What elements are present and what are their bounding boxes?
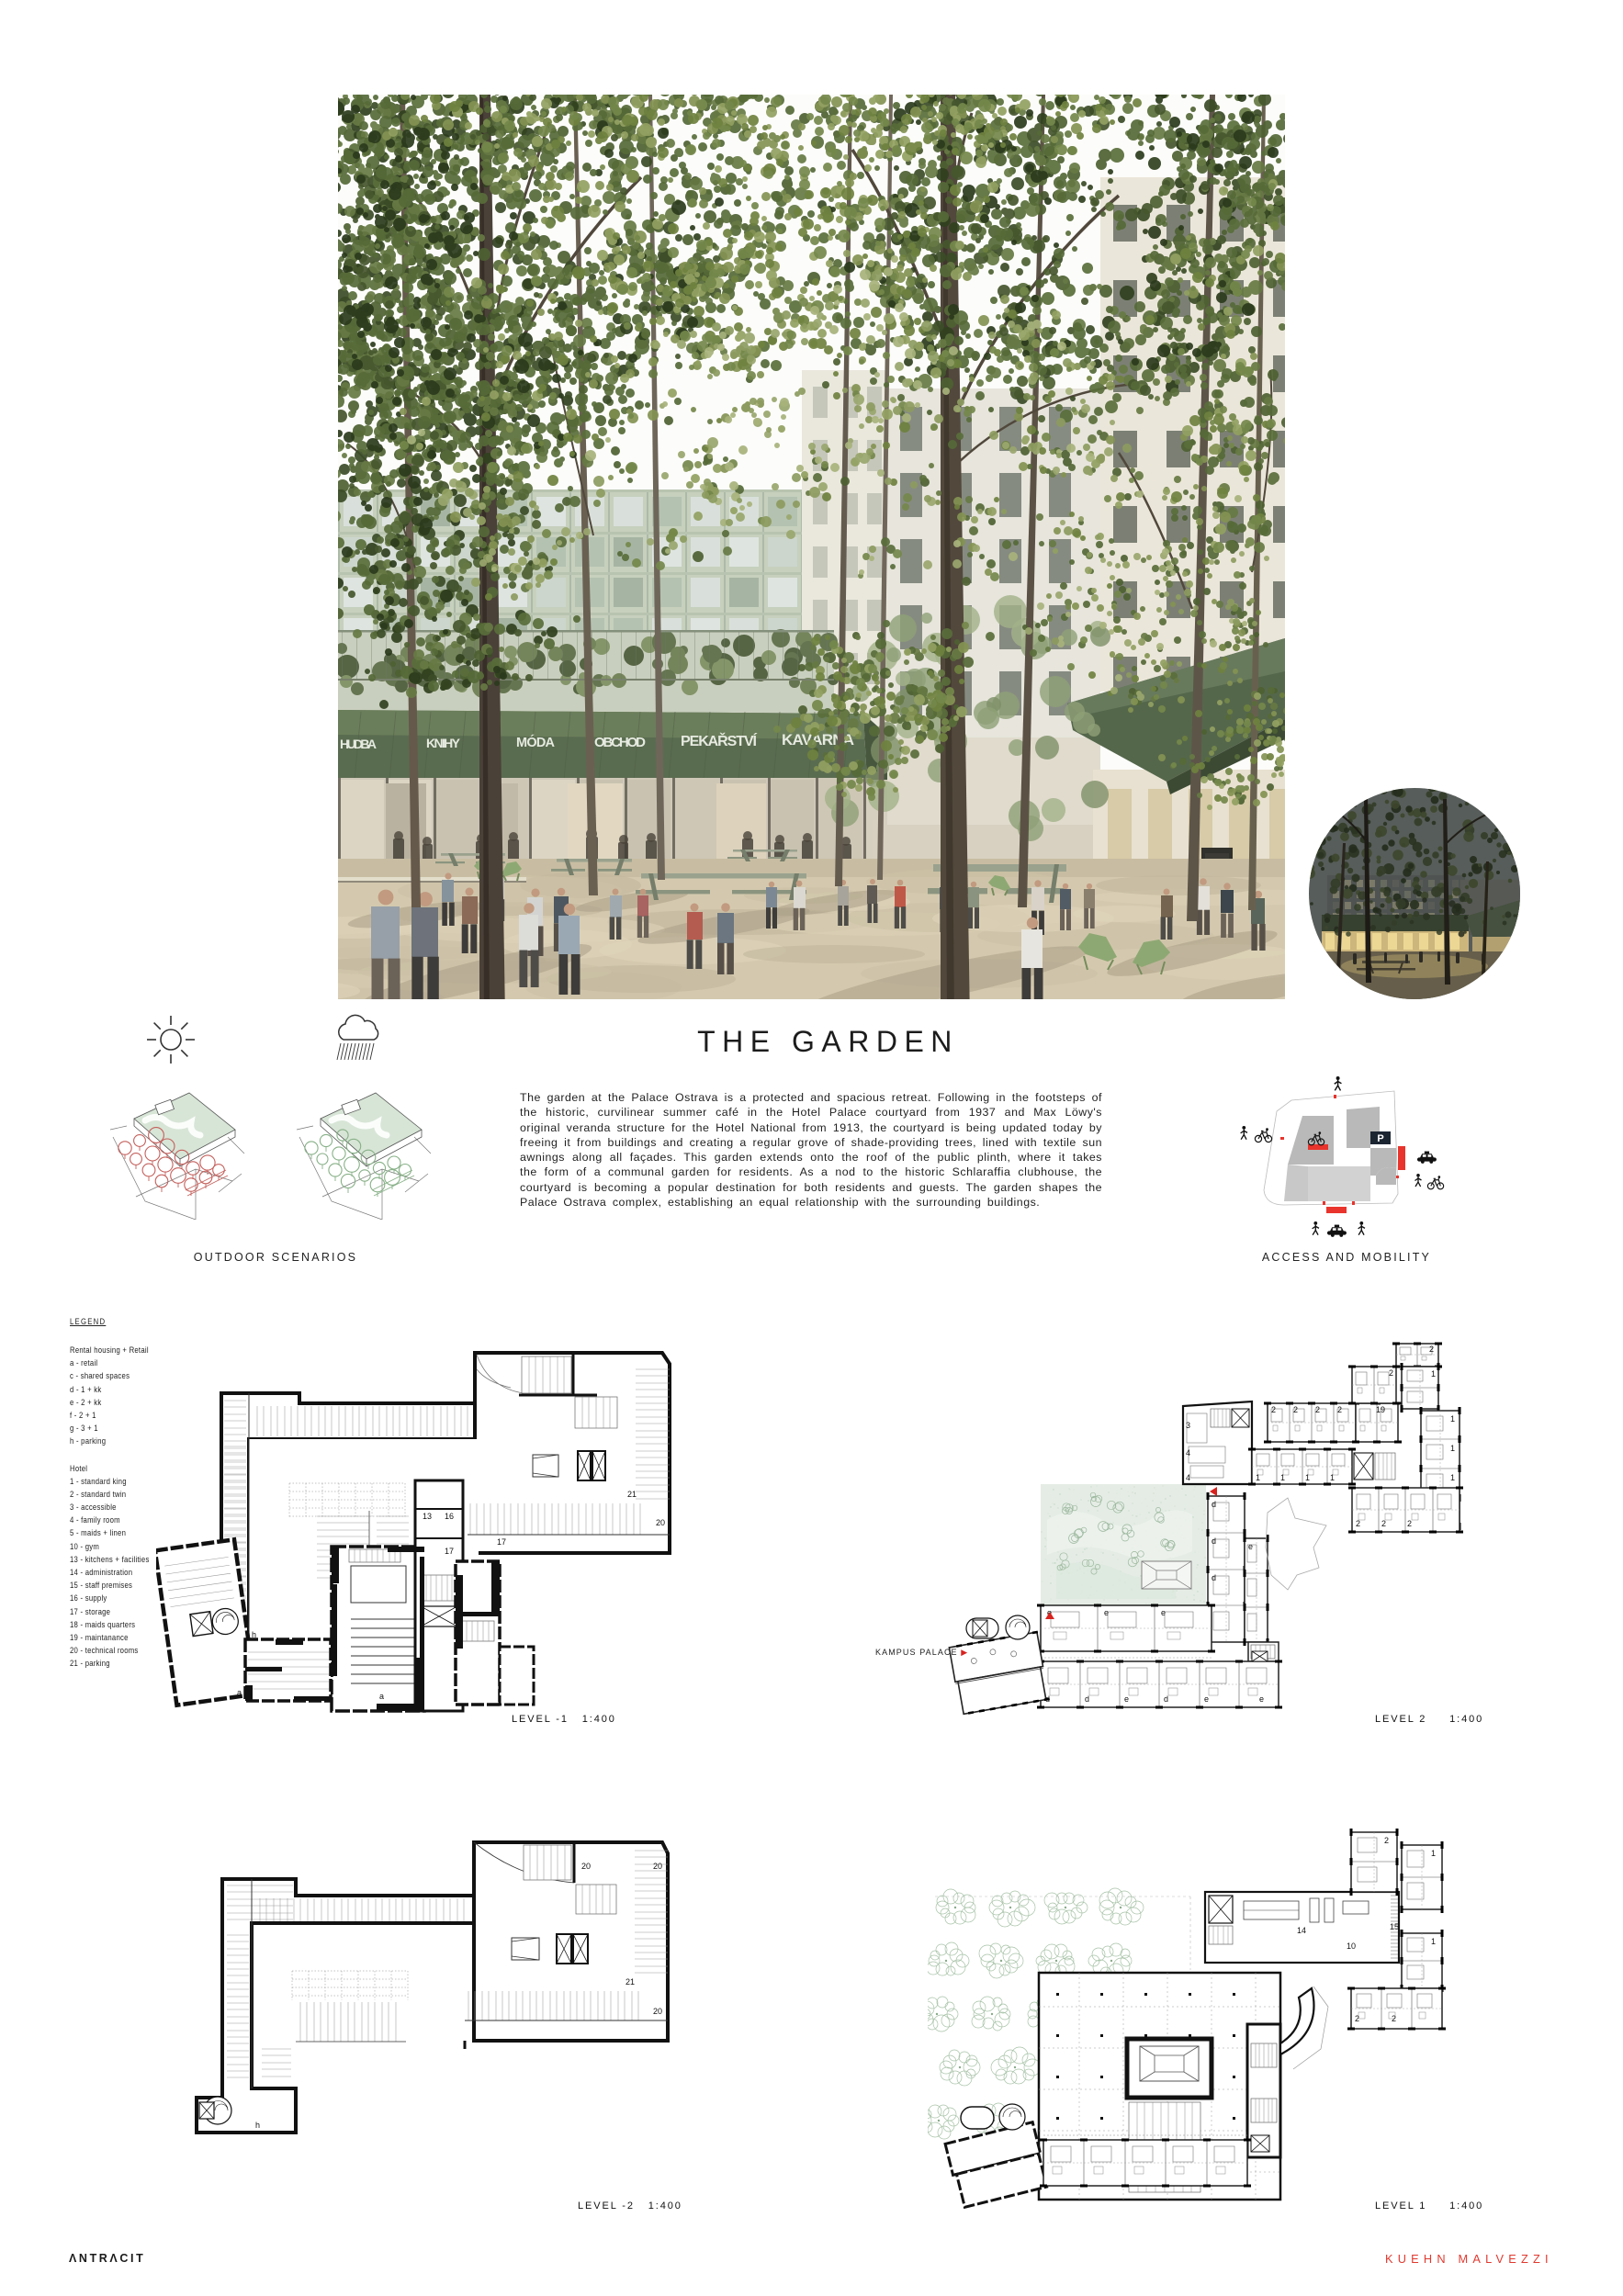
svg-text:PEKAŘSTVÍ: PEKAŘSTVÍ — [681, 732, 758, 749]
svg-text:HUDBA: HUDBA — [340, 737, 377, 751]
svg-text:MÓDA: MÓDA — [516, 734, 556, 750]
svg-text:OBCHOD: OBCHOD — [594, 735, 646, 750]
svg-text:KNIHY: KNIHY — [426, 736, 461, 750]
